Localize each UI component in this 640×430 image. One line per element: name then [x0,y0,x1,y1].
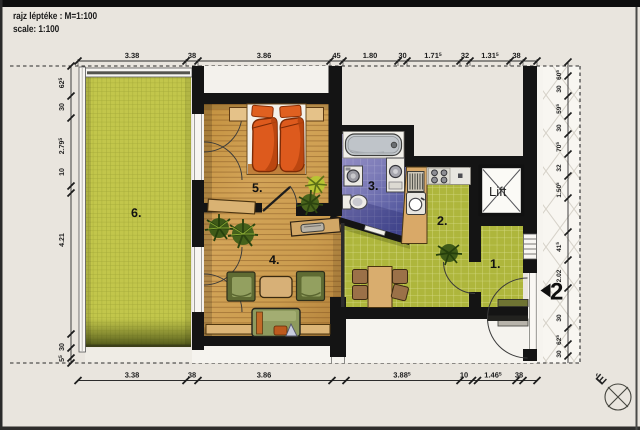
svg-text:30: 30 [556,85,563,93]
svg-text:30: 30 [59,103,66,111]
svg-text:3.38: 3.38 [125,371,140,380]
svg-text:rajz léptéke : M=1:100: rajz léptéke : M=1:100 [13,11,98,22]
svg-text:5.: 5. [252,181,262,195]
svg-text:32: 32 [556,164,563,172]
svg-text:3.: 3. [368,179,378,193]
svg-text:3.86: 3.86 [257,51,272,60]
svg-text:30: 30 [398,51,406,60]
svg-text:4.21: 4.21 [59,233,66,247]
svg-text:6.: 6. [131,206,141,220]
svg-text:30: 30 [59,343,66,351]
svg-text:38: 38 [188,371,196,380]
svg-text:3.38: 3.38 [125,51,140,60]
svg-text:3.86: 3.86 [257,371,272,380]
svg-text:32: 32 [461,51,469,60]
svg-text:2.02: 2.02 [556,269,563,282]
svg-text:10: 10 [59,168,66,176]
svg-text:scale: 1:100: scale: 1:100 [13,24,60,35]
svg-text:30: 30 [556,314,563,322]
svg-text:38: 38 [515,371,523,380]
svg-text:4.: 4. [269,253,279,267]
svg-text:30: 30 [556,350,563,358]
svg-text:2.: 2. [437,214,447,228]
svg-text:1.80: 1.80 [363,51,378,60]
svg-text:38: 38 [512,51,520,60]
svg-text:30: 30 [556,124,563,132]
svg-text:38: 38 [188,51,196,60]
svg-text:10: 10 [460,371,468,380]
svg-text:Lift: Lift [489,184,507,199]
svg-text:45: 45 [332,51,340,60]
svg-text:1.: 1. [490,257,500,271]
